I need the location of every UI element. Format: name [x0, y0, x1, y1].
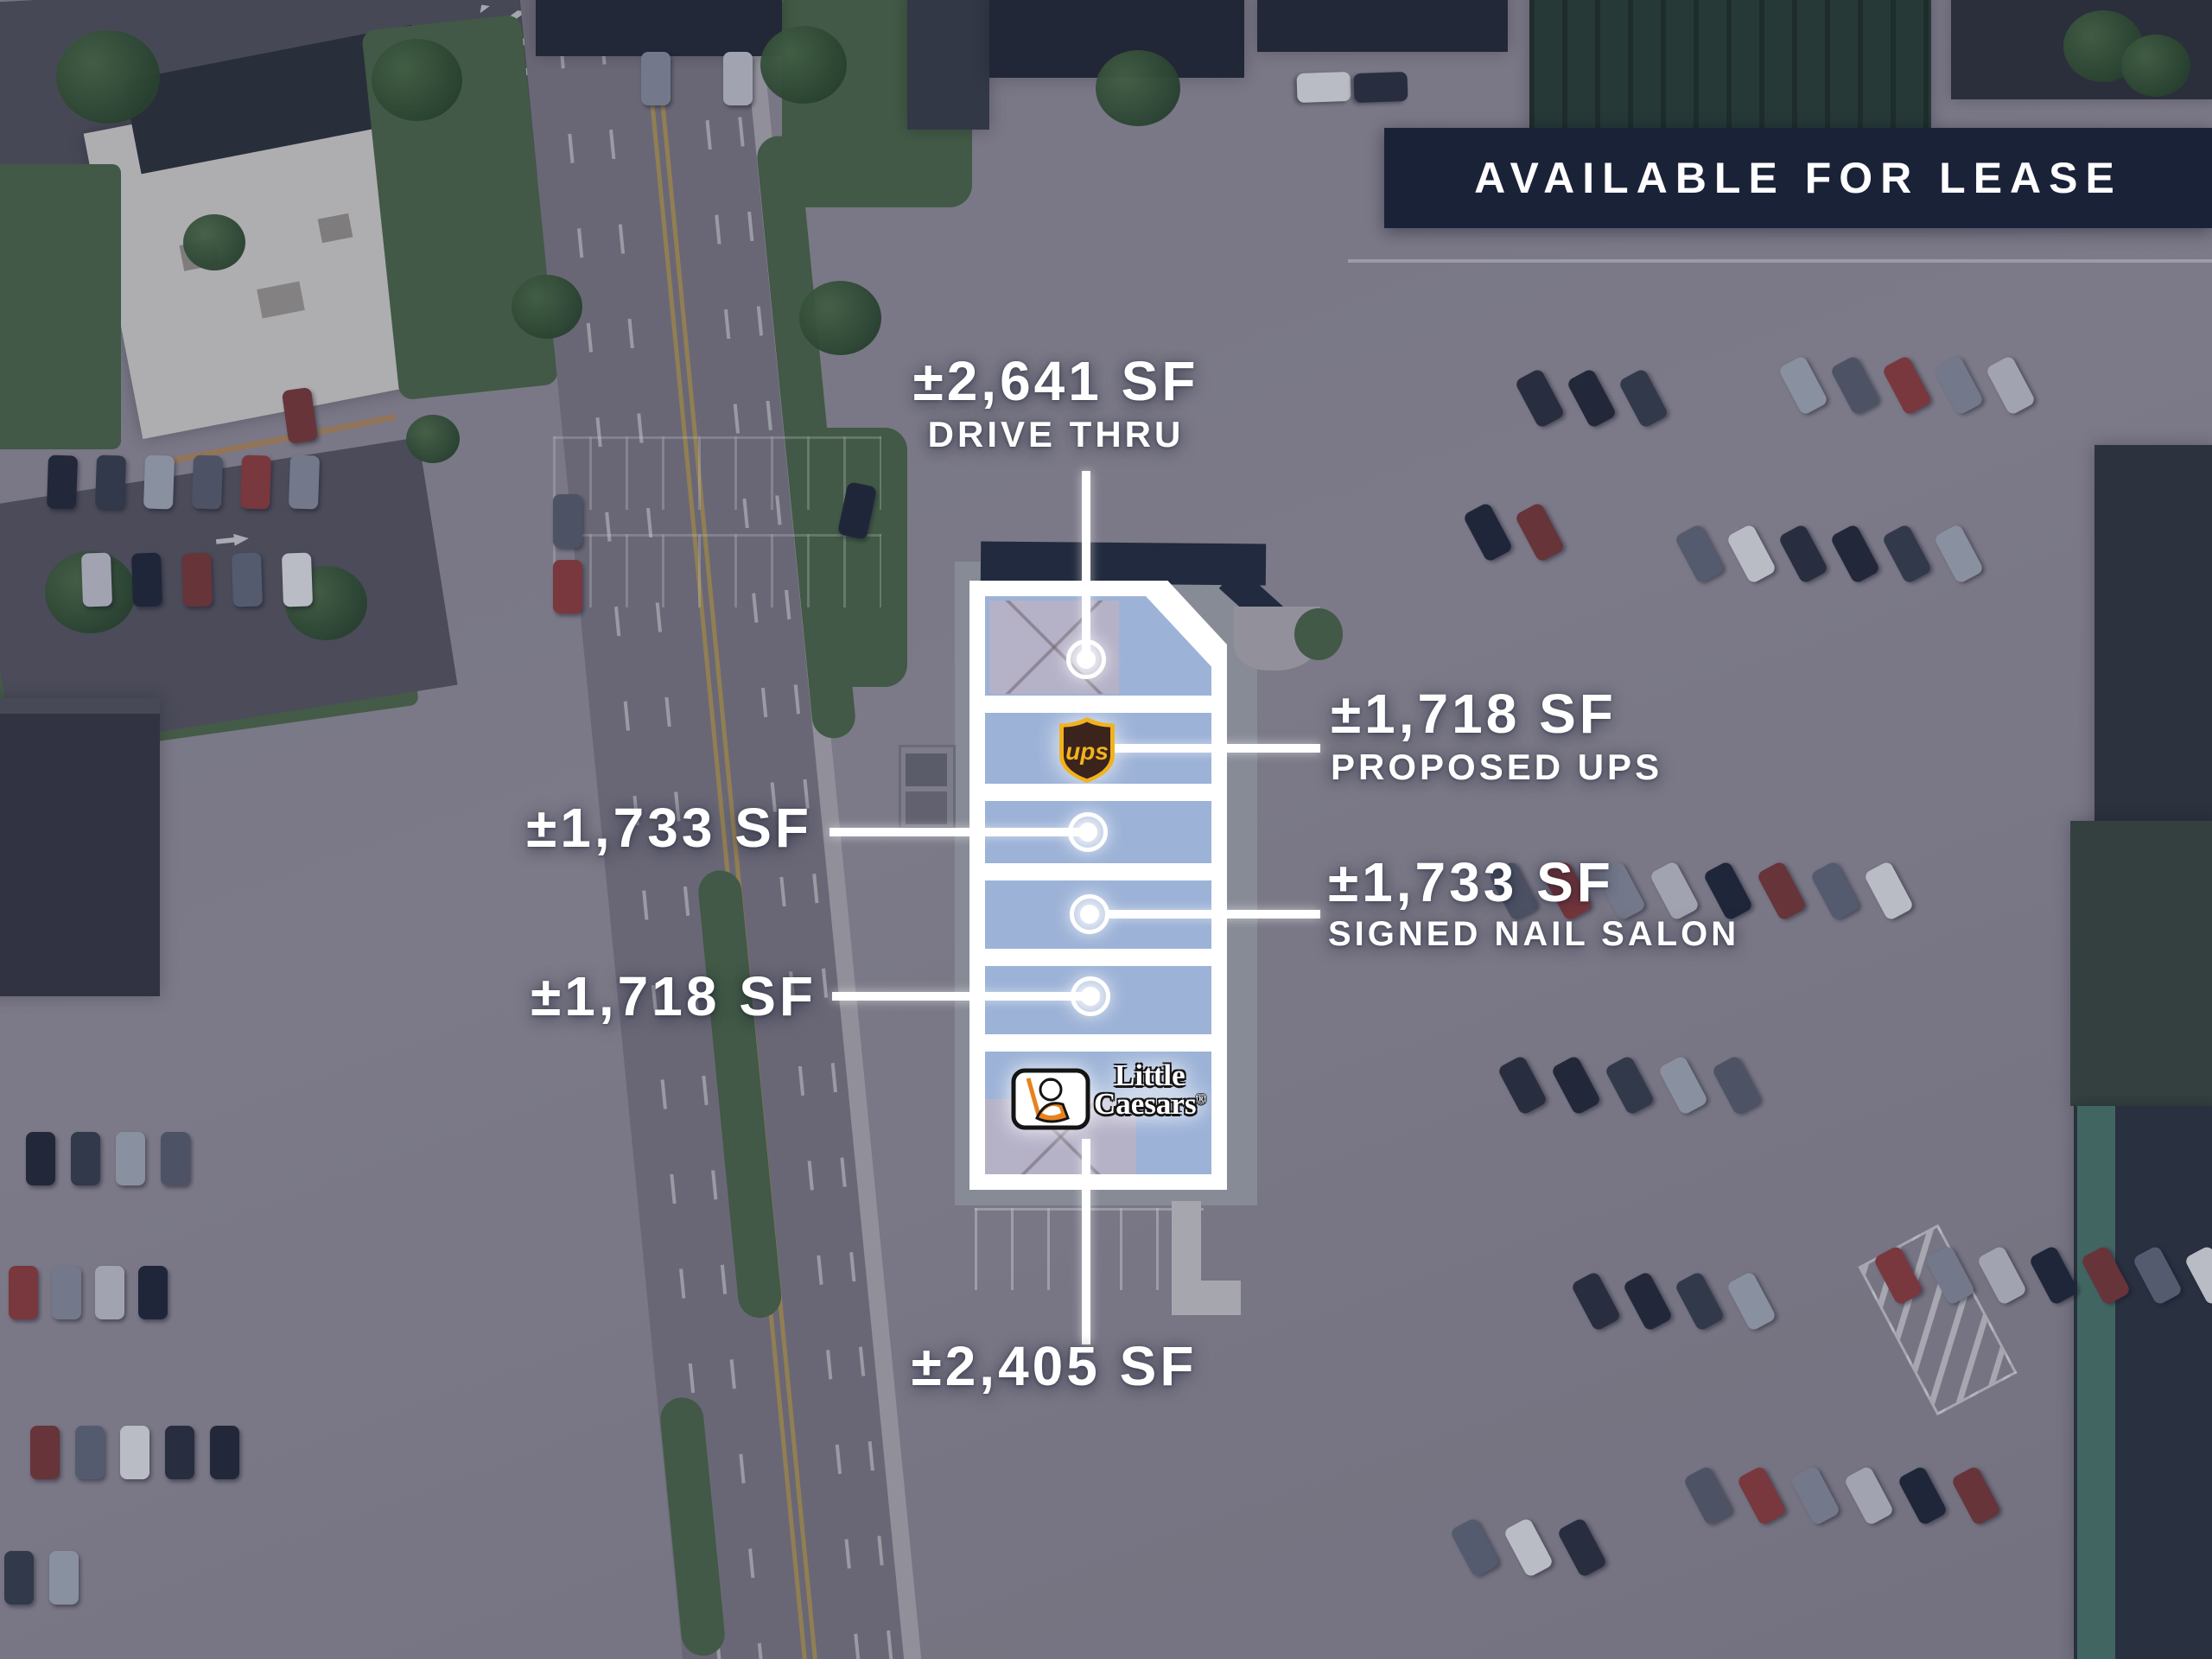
- leasing-flyer: ups Little Caesars® ±2,641 SF DRIVE THRU…: [0, 0, 2212, 1659]
- unit-marker-dot: [1066, 639, 1106, 679]
- label-unit-5: ±1,718 SF: [531, 968, 817, 1026]
- sf-value: ±1,733 SF: [1328, 854, 1739, 912]
- leader-line-drive-thru: [1082, 471, 1090, 659]
- unit-name: SIGNED NAIL SALON: [1328, 915, 1739, 954]
- leader-line-nail-salon: [1108, 910, 1320, 918]
- label-drive-thru: ±2,641 SF DRIVE THRU: [913, 353, 1199, 455]
- unit-marker-dot: [1068, 812, 1108, 852]
- leader-line-unit-3: [829, 828, 1089, 836]
- leader-line-unit-5: [832, 992, 1091, 1001]
- sf-value: ±1,718 SF: [531, 968, 817, 1026]
- unit-marker-dot: [1070, 894, 1109, 934]
- sf-value: ±2,641 SF: [913, 353, 1199, 410]
- sf-value: ±1,733 SF: [526, 799, 812, 857]
- little-caesars-logo: Little Caesars®: [1011, 1066, 1210, 1134]
- little-caesars-wordmark: Little Caesars®: [1094, 1061, 1205, 1119]
- ups-wordmark: ups: [1065, 738, 1109, 765]
- leader-line-bottom: [1082, 1139, 1090, 1344]
- label-bottom-unit: ±2,405 SF: [912, 1338, 1198, 1395]
- label-nail-salon: ±1,733 SF SIGNED NAIL SALON: [1328, 854, 1739, 954]
- unit-name: PROPOSED UPS: [1331, 747, 1662, 788]
- little-caesars-icon: [1011, 1068, 1090, 1130]
- sf-value: ±2,405 SF: [912, 1338, 1198, 1395]
- leader-line-proposed-ups: [1111, 744, 1320, 753]
- lease-banner: AVAILABLE FOR LEASE: [1384, 128, 2212, 228]
- label-proposed-ups: ±1,718 SF PROPOSED UPS: [1331, 685, 1662, 788]
- unit-name: DRIVE THRU: [913, 414, 1199, 455]
- unit-marker-dot: [1071, 976, 1110, 1016]
- label-unit-3: ±1,733 SF: [526, 799, 812, 857]
- sf-value: ±1,718 SF: [1331, 685, 1662, 743]
- lease-banner-text: AVAILABLE FOR LEASE: [1474, 153, 2122, 203]
- ups-logo: ups: [1059, 717, 1115, 783]
